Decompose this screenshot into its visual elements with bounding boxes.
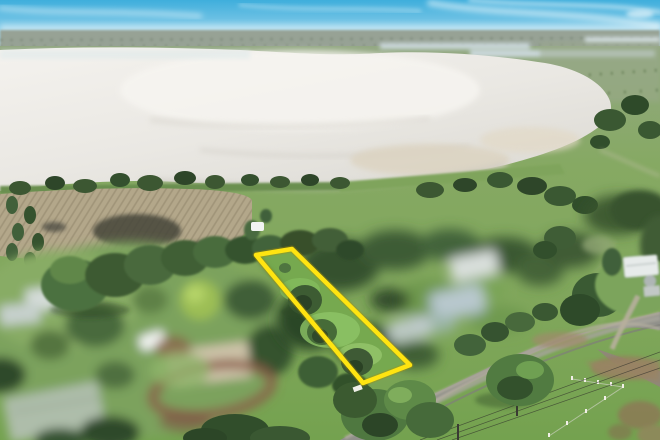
bright-tree-highlight (185, 285, 205, 303)
bare-dirt (608, 424, 632, 440)
gravel-patch (532, 332, 588, 348)
power-pole (457, 424, 459, 440)
parcel-bush (279, 263, 291, 273)
shed-roof (0, 302, 41, 326)
tree-blob (132, 286, 168, 314)
tree-blob (30, 330, 70, 360)
parked-ute (251, 222, 264, 231)
tree-blob (359, 230, 431, 270)
cloud-puff (626, 10, 654, 18)
aerial-photo-canvas (0, 0, 660, 440)
water-tank (644, 275, 656, 287)
small-shed (644, 285, 660, 296)
aerial-photo (0, 0, 660, 440)
lake-sand-flat (480, 127, 580, 153)
tree-blob (95, 361, 135, 389)
hedge (602, 248, 622, 276)
tree-blob (224, 280, 276, 320)
